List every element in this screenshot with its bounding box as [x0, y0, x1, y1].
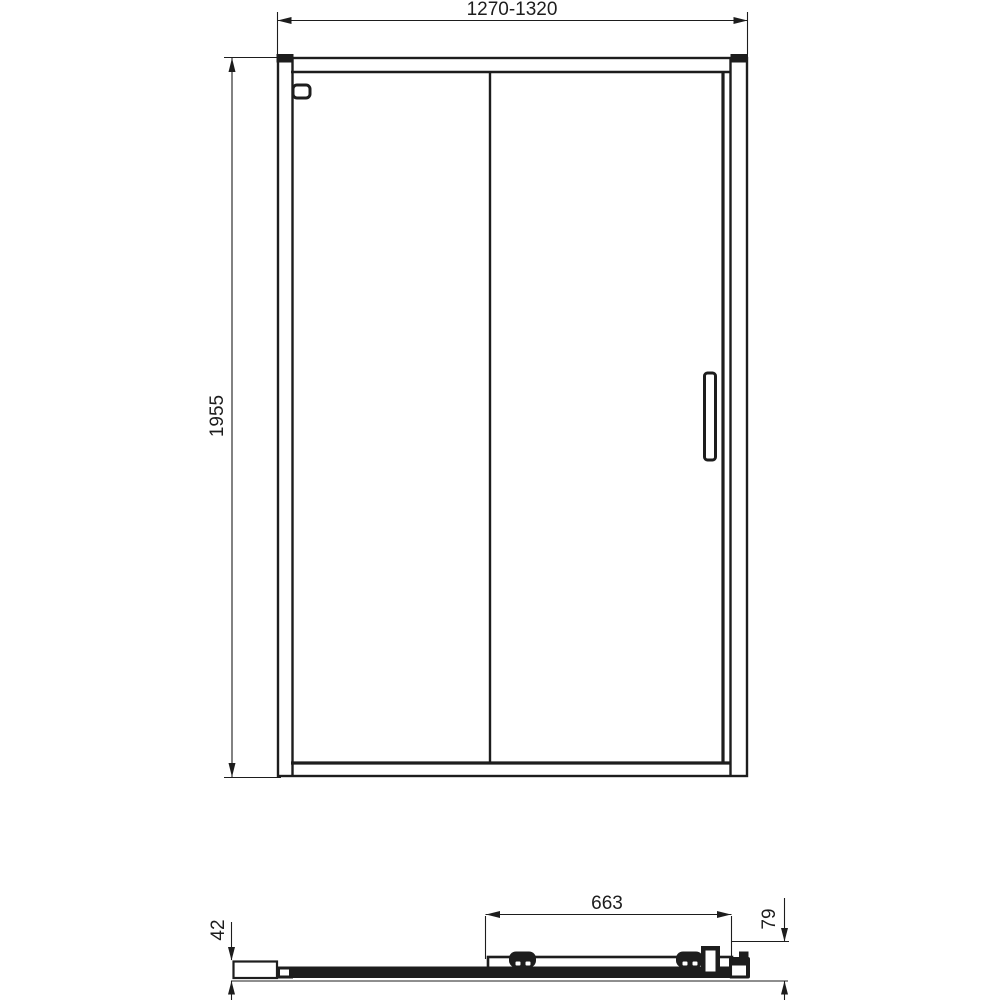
dim-label-overall-height: 1955 [207, 395, 228, 437]
dim-label-panel-width: 663 [591, 893, 623, 914]
wall-bracket-notch [280, 970, 289, 976]
arrow-down [228, 947, 235, 961]
arrow-down [781, 928, 788, 942]
dim-label-profile-depth: 42 [208, 919, 229, 940]
door-outer-frame [278, 58, 747, 776]
dim-total-depth: 79 [732, 898, 789, 1000]
end-knob [729, 952, 750, 979]
front-view [277, 54, 749, 776]
technical-drawing: 1270-1320 1955 [0, 0, 1000, 1000]
arrow-up [229, 58, 236, 72]
dim-profile-depth: 42 [208, 919, 235, 1000]
roller-carriage-left [509, 952, 536, 968]
drawing-canvas: 1270-1320 1955 [0, 0, 1000, 1000]
roller-detail [293, 85, 310, 98]
arrow-left [278, 17, 292, 24]
dim-label-overall-width: 1270-1320 [467, 0, 558, 20]
top-left-corner-bracket [277, 54, 294, 63]
dim-overall-width: 1270-1320 [278, 0, 748, 54]
arrow-up [228, 981, 235, 995]
wall-profile [234, 962, 278, 979]
arrow-up [781, 981, 788, 995]
arrow-down [229, 763, 236, 777]
arrow-right [734, 17, 748, 24]
fixed-panel-section [293, 967, 733, 979]
roller-carriage-right [676, 952, 703, 968]
plan-view [231, 946, 788, 981]
arrow-right [717, 911, 731, 918]
handle-section [701, 946, 720, 978]
arrow-left [486, 911, 500, 918]
door-handle [705, 373, 716, 460]
dim-overall-height: 1955 [207, 58, 281, 778]
top-right-corner-bracket [731, 54, 749, 63]
dim-label-total-depth: 79 [759, 908, 780, 929]
